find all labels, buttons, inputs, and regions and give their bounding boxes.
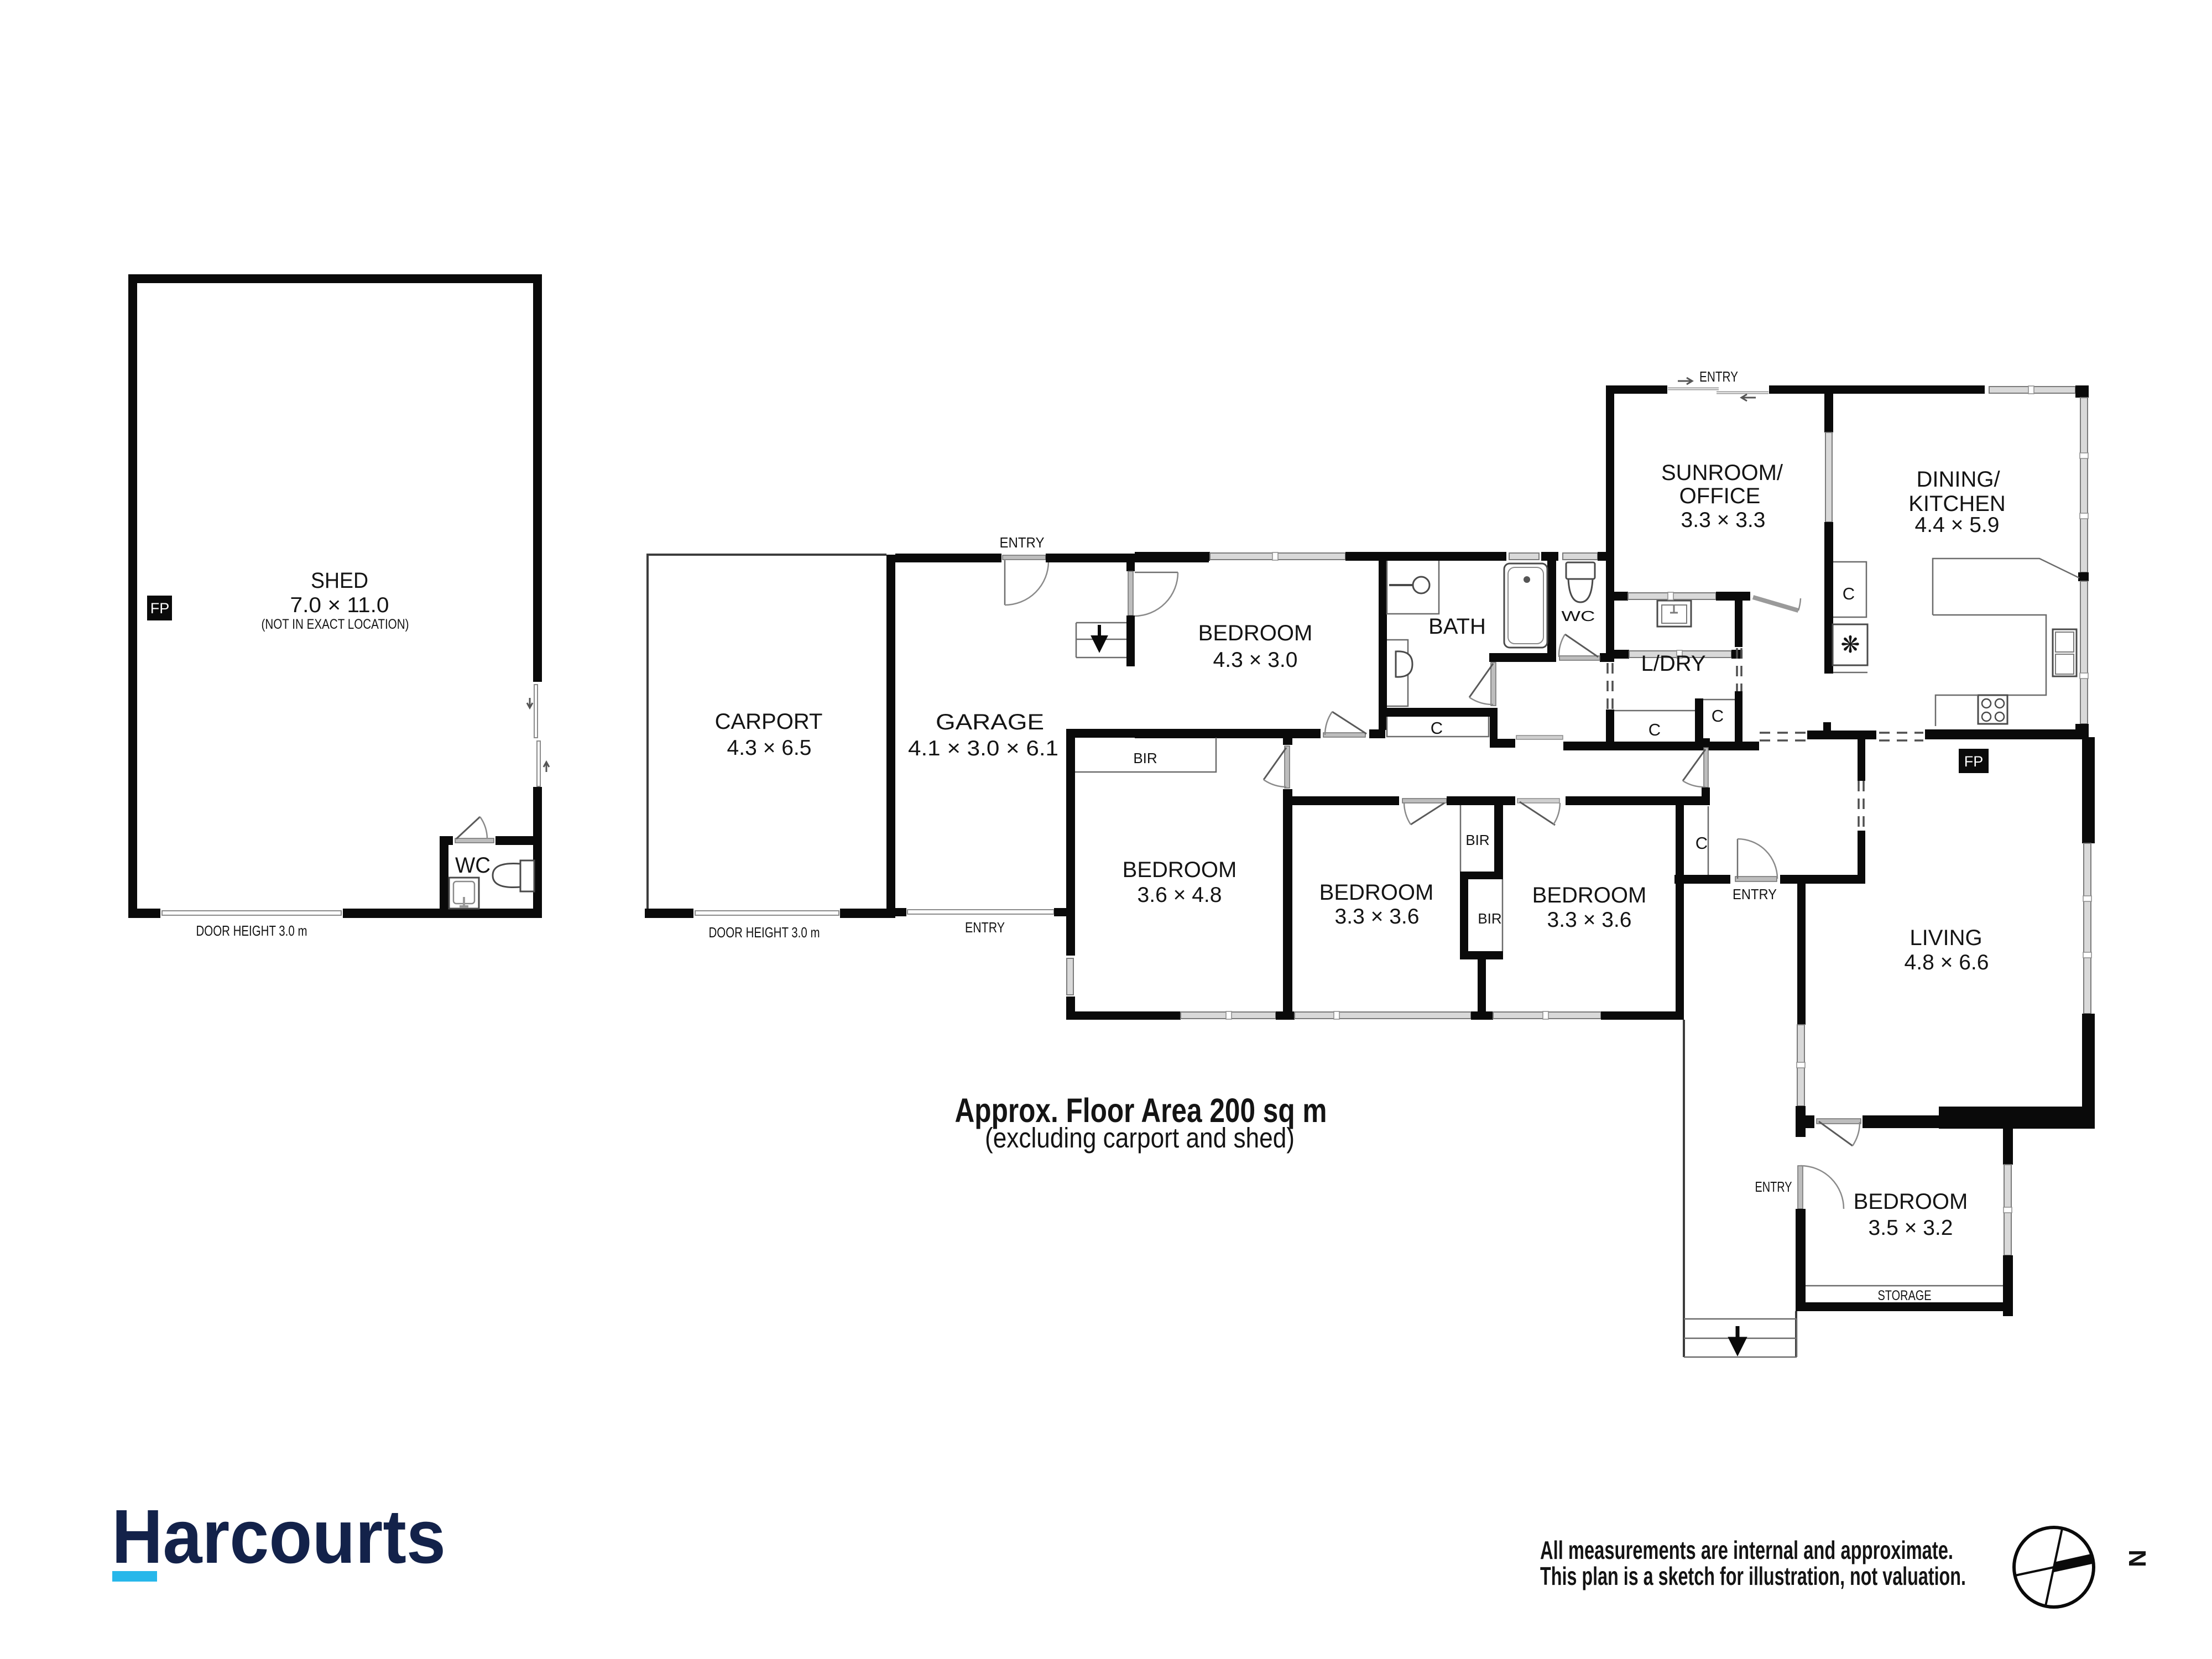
svg-text:4.3 × 6.5: 4.3 × 6.5 xyxy=(727,736,812,760)
svg-text:3.6 × 4.8: 3.6 × 4.8 xyxy=(1138,883,1222,907)
svg-text:(NOT IN EXACT LOCATION): (NOT IN EXACT LOCATION) xyxy=(262,617,409,632)
svg-text:3.3 × 3.6: 3.3 × 3.6 xyxy=(1335,905,1420,928)
svg-text:ENTRY: ENTRY xyxy=(1733,886,1777,902)
svg-text:CARPORT: CARPORT xyxy=(715,709,823,734)
svg-text:BEDROOM: BEDROOM xyxy=(1854,1190,1968,1214)
svg-text:ENTRY: ENTRY xyxy=(1000,534,1045,551)
svg-text:BEDROOM: BEDROOM xyxy=(1319,880,1434,905)
svg-text:3.3 × 3.6: 3.3 × 3.6 xyxy=(1547,908,1632,932)
svg-text:SUNROOM/: SUNROOM/ xyxy=(1661,461,1783,485)
svg-text:❋: ❋ xyxy=(1840,632,1860,658)
svg-text:4.3 × 3.0: 4.3 × 3.0 xyxy=(1213,648,1298,672)
svg-text:BEDROOM: BEDROOM xyxy=(1532,883,1647,907)
svg-text:OFFICE: OFFICE xyxy=(1679,484,1761,508)
svg-text:3.5 × 3.2: 3.5 × 3.2 xyxy=(1869,1216,1953,1240)
svg-text:L/DRY: L/DRY xyxy=(1641,651,1705,676)
svg-text:This plan is a sketch for illu: This plan is a sketch for illustration, … xyxy=(1540,1562,1966,1590)
svg-text:WC: WC xyxy=(1562,608,1595,624)
svg-text:C: C xyxy=(1843,584,1855,603)
svg-text:WC: WC xyxy=(455,853,491,878)
svg-text:(excluding carport and shed): (excluding carport and shed) xyxy=(985,1122,1295,1154)
svg-text:BEDROOM: BEDROOM xyxy=(1198,621,1313,645)
svg-text:ENTRY: ENTRY xyxy=(965,919,1005,936)
svg-text:4.4 × 5.9: 4.4 × 5.9 xyxy=(1915,513,2000,537)
svg-text:STORAGE: STORAGE xyxy=(1878,1288,1932,1303)
svg-text:FP: FP xyxy=(150,600,170,617)
svg-text:BATH: BATH xyxy=(1428,614,1486,639)
svg-text:SHED: SHED xyxy=(311,568,368,593)
svg-text:C: C xyxy=(1431,718,1443,738)
svg-text:Harcourts: Harcourts xyxy=(112,1494,446,1579)
svg-text:ENTRY: ENTRY xyxy=(1755,1178,1792,1195)
svg-text:C: C xyxy=(1712,706,1724,726)
svg-text:BIR: BIR xyxy=(1133,750,1157,766)
svg-text:KITCHEN: KITCHEN xyxy=(1908,492,2006,516)
svg-text:N: N xyxy=(2124,1550,2151,1567)
svg-text:All measurements are internal: All measurements are internal and approx… xyxy=(1540,1536,1953,1564)
svg-text:C: C xyxy=(1648,720,1661,739)
svg-text:DOOR HEIGHT 3.0 m: DOOR HEIGHT 3.0 m xyxy=(709,924,820,941)
svg-text:GARAGE: GARAGE xyxy=(936,710,1044,734)
svg-text:7.0 × 11.0: 7.0 × 11.0 xyxy=(290,593,389,617)
svg-text:FP: FP xyxy=(1964,753,1984,770)
svg-text:3.3 × 3.3: 3.3 × 3.3 xyxy=(1681,508,1766,532)
svg-text:LIVING: LIVING xyxy=(1910,926,1982,950)
svg-text:ENTRY: ENTRY xyxy=(1699,368,1738,385)
svg-text:4.8 × 6.6: 4.8 × 6.6 xyxy=(1905,951,1989,974)
svg-text:DINING/: DINING/ xyxy=(1916,467,2000,492)
svg-text:BEDROOM: BEDROOM xyxy=(1123,858,1237,882)
svg-text:DOOR HEIGHT 3.0 m: DOOR HEIGHT 3.0 m xyxy=(196,922,307,939)
svg-text:BIR: BIR xyxy=(1478,910,1501,927)
svg-text:BIR: BIR xyxy=(1465,832,1489,848)
svg-text:4.1 × 3.0 × 6.1: 4.1 × 3.0 × 6.1 xyxy=(908,737,1058,760)
svg-text:C: C xyxy=(1695,833,1708,853)
